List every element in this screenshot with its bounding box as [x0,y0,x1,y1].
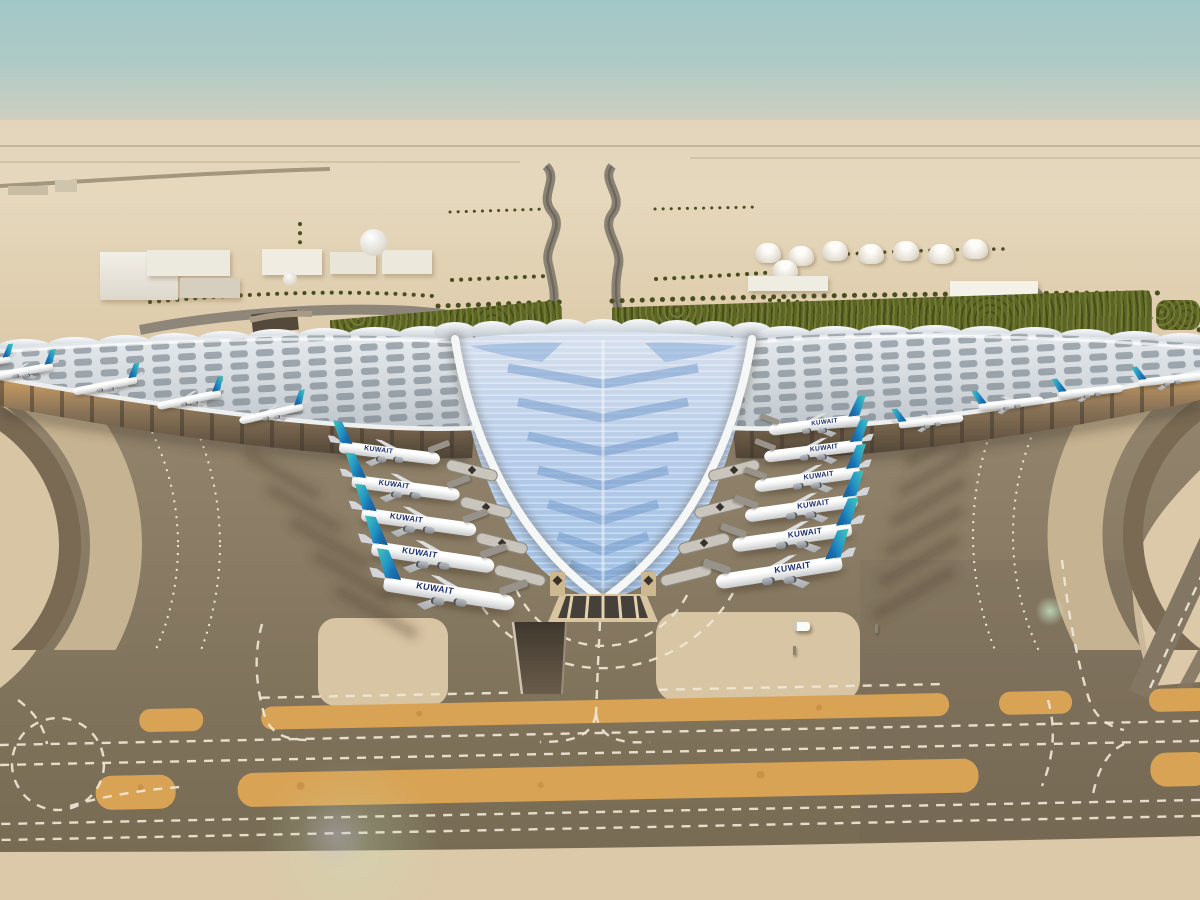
light-post [793,646,796,655]
service-vehicle [794,622,810,631]
terminal-building [0,0,1200,900]
aerial-rendering-scene: KUWAITKUWAITKUWAITKUWAITKUWAITKUWAITKUWA… [0,0,1200,900]
light-post [875,624,878,633]
